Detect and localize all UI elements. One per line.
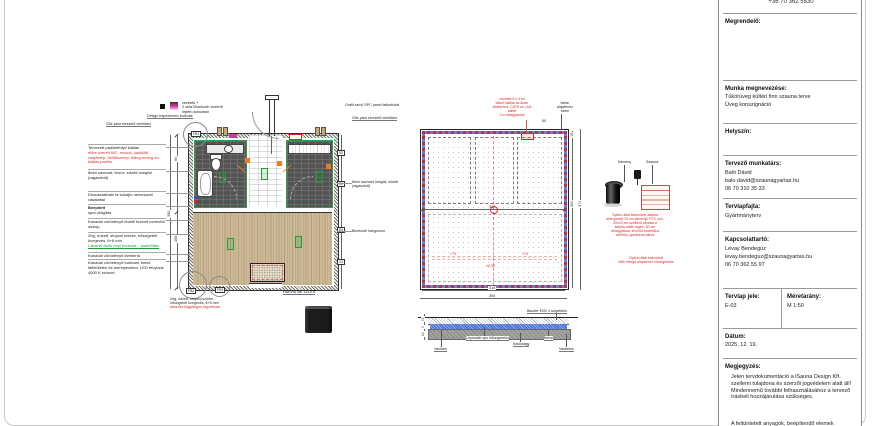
leader-line xyxy=(556,314,557,320)
tag-fb1: FB1 xyxy=(191,131,201,137)
left-annotation-6: 2rtg, edzett, stopsol szürke, hőszigetel… xyxy=(88,232,166,248)
leader-line xyxy=(652,165,653,184)
scale-value: M 1:50 xyxy=(787,303,857,311)
tag-fb2: FB2 xyxy=(186,288,196,294)
red-guide-line xyxy=(432,259,557,260)
left-annotation-2: 8mm savmart, bronz, edzett üvegfal (raga… xyxy=(88,169,166,181)
designer-phone: 06 70 310 35 33 xyxy=(725,186,857,194)
sauna-wall-sketch xyxy=(641,185,670,210)
left-annotation-7: Kanadai vörösfenyő lambéria xyxy=(88,252,166,259)
layout-zone-4 xyxy=(428,214,562,282)
note-line: 1m ráhagyással xyxy=(488,113,536,117)
sheet-type-value: Gyártmányterv xyxy=(725,213,857,221)
divider xyxy=(723,155,857,156)
leader-line xyxy=(484,327,485,336)
work-name-line1: Tükörüveg kültéri finn szauna terve xyxy=(725,94,857,102)
cold-water-point xyxy=(194,196,197,199)
sauna-heater-symbol xyxy=(250,263,285,282)
divider xyxy=(723,358,857,359)
chimney-drop-line xyxy=(271,136,272,154)
bottom-left-annotation: 2rtg, edzett, stopsol szürke, hőszigetel… xyxy=(170,297,232,310)
chimney-cap-sketch xyxy=(634,170,641,179)
section-dim-15: 15 xyxy=(421,316,425,322)
level-mark-right: +73 xyxy=(522,252,528,256)
drawing-sheet: FB1 FB2 FB3 HARVIA Mb 133-KR 84 268 350 … xyxy=(0,0,874,426)
dim-268: 268 xyxy=(174,235,178,243)
leader-line xyxy=(166,193,190,194)
light-symbol xyxy=(261,168,268,180)
leader-line xyxy=(548,330,549,336)
heater-label: HARVIA Mb 133-KR xyxy=(283,290,315,295)
divider xyxy=(723,13,857,14)
leader-line xyxy=(166,206,190,207)
slab-edge-leader xyxy=(561,114,562,130)
entrance-threshold xyxy=(249,283,282,288)
contact-name: Lévay Bendegúz xyxy=(725,246,857,254)
annotation-red-text: abszolút függőleges rögzítéssel xyxy=(170,305,232,309)
left-annotation-3: Elcsúsztatható fa tolóajtó nemesacél vas… xyxy=(88,191,166,203)
designer-name: Baló Dávid xyxy=(725,170,857,178)
label-chimney: Kémény xyxy=(618,160,631,164)
leader-line xyxy=(166,171,190,172)
heater-photo xyxy=(305,306,332,333)
company-phone: +36 70 362 5830 xyxy=(725,0,857,7)
designer-label: Tervező munkatárs: xyxy=(725,161,857,168)
divider xyxy=(723,123,857,124)
insulation-note-red: Gyártó által biztosított több rétegű ala… xyxy=(618,256,674,264)
leader-line xyxy=(337,231,352,232)
layout-zone-1 xyxy=(428,137,471,204)
dim-318: 318 xyxy=(488,286,496,290)
light-symbol xyxy=(227,238,234,250)
level-mark-left: +73 xyxy=(450,252,456,256)
left-annotation-5: Kanadai vörösfenyő lécből burkolt mereví… xyxy=(88,218,166,230)
leader-line xyxy=(166,261,190,262)
roof-post xyxy=(217,127,222,136)
annotation-green-text: Lábazat alatti vinyl burkolat – padlófűt… xyxy=(88,244,166,249)
section-dim-5: 5 xyxy=(421,325,425,329)
leader-line xyxy=(337,183,352,184)
top-right-label-spc: Grafit színű SPC panel falburkolat xyxy=(345,103,399,107)
label-rc: Vasbeton xyxy=(559,347,574,352)
notes-text-2: A feltüntetett anyagok, beépítendő eleme… xyxy=(731,421,855,426)
roof-post xyxy=(223,127,228,136)
detail-circle-fb2 xyxy=(179,271,207,299)
right-annotation-1: 8mm savmart üvegfal, edzett (ragasztott) xyxy=(352,180,407,188)
scale-label: Méretarány: xyxy=(787,294,857,301)
controller-tag xyxy=(229,134,237,138)
note-line: ellátáshoz, CAT6 os LAN kábel xyxy=(488,105,536,113)
title-block: +36 70 362 5830 Megrendelő: Munka megnev… xyxy=(718,0,862,426)
flue-cylinder-shadow xyxy=(604,203,622,207)
flue-note-red: Gyártó által biztosított, alapba elhelye… xyxy=(599,213,671,238)
bathtub-basin xyxy=(200,173,211,195)
work-name-line2: Üveg konszignáció xyxy=(725,102,857,110)
label-sauna: Szauna xyxy=(646,160,658,164)
label-xps: Lépésálló xps hőszigetelés xyxy=(466,336,509,341)
legend-swatch-magenta xyxy=(170,102,178,110)
note-line: szellőző gombával zárva xyxy=(599,233,671,237)
label-gravel: Kavicságy xyxy=(513,342,529,347)
left-annotation-8: Kanadai vörösfenyő burkolat, belső falfe… xyxy=(88,259,166,275)
contact-phone: 06 70 362 55 97 xyxy=(725,262,857,270)
leader-line xyxy=(441,330,442,347)
bench-right-room xyxy=(288,144,331,154)
leader-line xyxy=(520,333,521,342)
cable-note-red: vezeték 5 x 4 es kábel kiállás az áram e… xyxy=(488,97,536,117)
sheet-type-label: Tervlapfajta: xyxy=(725,204,857,211)
layout-zone-2 xyxy=(475,137,514,204)
top-right-label-vent: Gőz-pára elvezető ventilátor xyxy=(352,116,397,121)
center-point-mark xyxy=(490,206,498,214)
cable-note-leader xyxy=(526,120,527,133)
work-name-label: Munka megnevezése: xyxy=(725,86,857,93)
hot-water-point xyxy=(194,200,197,203)
label-line: széle xyxy=(553,109,577,113)
divider-vertical xyxy=(781,288,782,328)
speaker-symbol xyxy=(326,164,331,169)
annotation-text: 2rtg, edzett, stopsol szürke, hőszigetel… xyxy=(170,297,232,305)
divider xyxy=(723,231,857,232)
contact-label: Kapcsolattartó: xyxy=(725,237,857,244)
dim-line-354 xyxy=(420,298,567,299)
slab-edge-label: beton alaplemez széle xyxy=(553,101,577,113)
speaker-symbol xyxy=(277,161,282,166)
label-mesh: Vasháló xyxy=(434,347,447,352)
contact-email: levay.bendeguz@szaunagyartas.hu xyxy=(725,254,857,262)
leader-line xyxy=(166,234,190,235)
sheet-id-label: Tervlap jele: xyxy=(725,294,763,301)
notes-text: Jelen tervdokumentáció a iSauna Design K… xyxy=(731,374,855,401)
legend-swatch-black xyxy=(160,104,165,109)
leader-line xyxy=(624,165,625,182)
tag-53: 53 xyxy=(337,150,345,156)
divider xyxy=(723,80,857,81)
section-dim-10: 10 xyxy=(421,331,425,337)
light-symbol xyxy=(316,171,323,183)
leader-line xyxy=(166,254,190,255)
dim-50: 50 xyxy=(542,119,546,123)
red-marker-tag xyxy=(289,134,302,140)
roof-post xyxy=(315,127,320,136)
chimney-stem xyxy=(637,179,638,185)
client-label: Megrendelő: xyxy=(725,19,857,26)
dim-line-371 xyxy=(580,129,581,290)
leader-line xyxy=(566,334,567,347)
roof-post xyxy=(321,127,326,136)
cable-outlet-box xyxy=(521,133,534,140)
label-concrete: Beton xyxy=(544,336,553,341)
right-annotation-2: Bluetooth hangszóró xyxy=(352,229,385,233)
annotation-red-text: előre szerelt WC, mosdó, kádtöltő csapte… xyxy=(88,151,166,165)
tag-13: 13 xyxy=(337,259,345,265)
dim-84: 84 xyxy=(174,156,178,162)
leader-line xyxy=(166,220,190,221)
dim-18: 18 xyxy=(570,132,574,138)
dim-line-302 xyxy=(572,131,573,288)
dim-302: 302 xyxy=(570,200,574,208)
top-label-trapezoid-cladding: Design trapézlemez burkolat xyxy=(147,114,193,119)
label-bauder: Bauder ENV 4 szigetelés xyxy=(527,309,567,314)
speaker-symbol xyxy=(245,158,250,163)
notes-label: Megjegyzés: xyxy=(725,364,857,371)
tag-fb3: FB3 xyxy=(215,287,225,293)
location-label: Helyszín: xyxy=(725,129,857,136)
light-symbol xyxy=(295,236,302,248)
layout-zone-3 xyxy=(517,137,562,204)
bathtub xyxy=(197,170,213,197)
divider xyxy=(723,328,857,329)
legend-text: vezeték + 2 utas Bluetooth vezérlő rejte… xyxy=(182,101,230,114)
divider xyxy=(723,288,857,289)
designer-email: balo.david@szaunagyartas.hu xyxy=(725,178,857,186)
annotation-text: spot világítás xyxy=(88,211,166,216)
left-annotation-4: Beépített spot világítás xyxy=(88,204,166,216)
dim-line-318 xyxy=(422,290,565,291)
left-annotation-1: Tervezett padlólefolyó kiállás előre sze… xyxy=(88,144,166,165)
dim-350: 350 xyxy=(167,210,171,218)
washbasin xyxy=(224,145,233,153)
dim-354: 354 xyxy=(488,294,496,298)
tag-29: 29 xyxy=(337,181,345,187)
flue-cylinder-body xyxy=(606,184,620,204)
dim-line-right xyxy=(341,135,342,289)
divider xyxy=(723,198,857,199)
leader-line xyxy=(166,147,190,148)
heater-clearance xyxy=(252,265,283,280)
tag-83: 83 xyxy=(337,227,345,233)
dim-371: 371 xyxy=(578,200,582,208)
date-label: Dátum: xyxy=(725,334,857,341)
top-label-vent: Gőz-pára elvezető ventilátor xyxy=(106,122,151,127)
note-line: több rétegű alaplemez hőszigetelés xyxy=(618,260,674,264)
level-mark-center: ±0,00 xyxy=(486,264,495,268)
date-value: 2025. 12. 19. xyxy=(725,342,857,350)
chimney-cap xyxy=(265,95,279,100)
